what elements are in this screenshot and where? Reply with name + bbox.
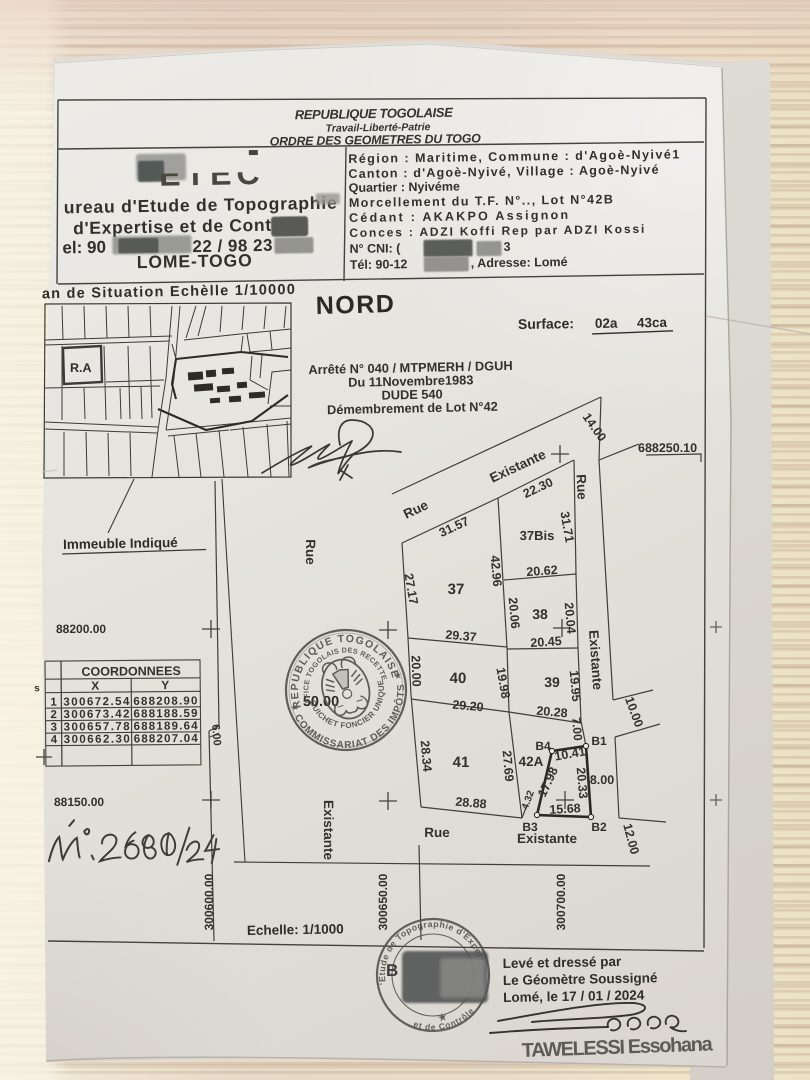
svg-text:300650.00: 300650.00 xyxy=(376,873,390,930)
svg-text:688207.04: 688207.04 xyxy=(134,733,199,746)
svg-text:37: 37 xyxy=(448,581,465,598)
svg-text:300662.30: 300662.30 xyxy=(64,733,130,746)
svg-text:Tél: 90-12: Tél: 90-12 xyxy=(350,257,408,272)
svg-text:300600.00: 300600.00 xyxy=(202,873,216,930)
svg-text:LOME-TOGO: LOME-TOGO xyxy=(137,250,252,272)
svg-text:Morcellement du T.F. N°.., Lot: Morcellement du T.F. N°.., Lot N°42B xyxy=(349,192,613,210)
svg-text:3: 3 xyxy=(503,240,510,254)
svg-text:4.32: 4.32 xyxy=(520,789,537,811)
svg-text:27.69: 27.69 xyxy=(500,750,517,782)
svg-text:Y: Y xyxy=(161,678,169,692)
svg-text:X: X xyxy=(91,679,99,693)
svg-text:TAWELESSI Essohana: TAWELESSI Essohana xyxy=(521,1033,714,1062)
svg-text:688208.90: 688208.90 xyxy=(133,695,197,708)
svg-text:19.98: 19.98 xyxy=(493,666,512,699)
svg-text:300657.78: 300657.78 xyxy=(64,721,131,734)
svg-text:8.00: 8.00 xyxy=(590,773,614,787)
svg-text:88200.00: 88200.00 xyxy=(56,622,106,636)
svg-text:NORD: NORD xyxy=(315,290,395,320)
svg-text:COORDONNEES: COORDONNEES xyxy=(81,664,180,679)
svg-text:Echelle: 1/1000: Echelle: 1/1000 xyxy=(247,921,344,938)
svg-text:300673.42: 300673.42 xyxy=(63,708,129,721)
svg-text:14.00: 14.00 xyxy=(580,410,609,444)
svg-text:7.00: 7.00 xyxy=(569,717,585,742)
svg-text:Démembrement de Lot N°42: Démembrement de Lot N°42 xyxy=(327,399,498,418)
svg-text:688189.64: 688189.64 xyxy=(134,720,199,733)
svg-text:42.96: 42.96 xyxy=(488,555,505,587)
svg-text:37Bis: 37Bis xyxy=(520,528,555,543)
svg-text:688188.59: 688188.59 xyxy=(133,708,197,721)
svg-text:B1: B1 xyxy=(591,734,607,748)
svg-text:88150.00: 88150.00 xyxy=(54,795,104,809)
svg-text:20.28: 20.28 xyxy=(536,704,568,721)
svg-text:B3: B3 xyxy=(522,820,538,834)
svg-text:20.33: 20.33 xyxy=(574,767,591,799)
svg-text:29.20: 29.20 xyxy=(452,698,484,715)
svg-text:40: 40 xyxy=(450,670,467,687)
svg-text:4: 4 xyxy=(51,734,58,746)
svg-text:d'Expertise et de Cont: d'Expertise et de Cont xyxy=(73,215,271,238)
svg-text:17.98: 17.98 xyxy=(535,765,561,799)
svg-text:42A: 42A xyxy=(519,754,544,769)
svg-text:B: B xyxy=(386,961,398,980)
svg-text:12.00: 12.00 xyxy=(620,822,642,856)
svg-text:Rue: Rue xyxy=(573,474,589,501)
svg-text:41: 41 xyxy=(453,754,470,771)
svg-text:300700.00: 300700.00 xyxy=(554,873,568,930)
svg-text:3: 3 xyxy=(51,722,58,734)
svg-text:Le Géomètre Soussigné: Le Géomètre Soussigné xyxy=(503,970,658,988)
svg-text:10.41: 10.41 xyxy=(553,744,586,763)
svg-text:s: s xyxy=(34,683,40,694)
svg-text:Rue: Rue xyxy=(424,825,450,840)
svg-text:2: 2 xyxy=(50,709,57,721)
svg-text:ORDRE DES GEOMETRES DU TOGO: ORDRE DES GEOMETRES DU TOGO xyxy=(270,131,482,148)
svg-text:an de Situation Echèlle 1/1000: an de Situation Echèlle 1/10000 xyxy=(42,282,295,302)
svg-text:el: 90: el: 90 xyxy=(62,238,106,258)
svg-text:22.30: 22.30 xyxy=(521,475,555,501)
svg-text:19.95: 19.95 xyxy=(567,670,584,702)
svg-text:Levé et dressé par: Levé et dressé par xyxy=(502,954,622,971)
svg-text:28.34: 28.34 xyxy=(418,740,435,772)
svg-text:20.04: 20.04 xyxy=(562,602,579,634)
svg-text:39: 39 xyxy=(544,674,560,690)
svg-text:10.00: 10.00 xyxy=(622,695,646,729)
svg-text:Surface:: Surface: xyxy=(518,315,574,332)
svg-text:02a: 02a xyxy=(595,316,618,331)
svg-text:38: 38 xyxy=(532,606,548,622)
svg-text:Conces : ADZI Koffi Rep par AD: Conces : ADZI Koffi Rep par ADZI Kossi xyxy=(349,222,644,240)
svg-text:, Adresse: Lomé: , Adresse: Lomé xyxy=(471,255,568,270)
svg-text:20.62: 20.62 xyxy=(526,563,558,579)
svg-text:Rue: Rue xyxy=(401,497,431,522)
svg-text:Existante: Existante xyxy=(586,629,605,690)
svg-text:ureau d'Etude de Topographie: ureau d'Etude de Topographie xyxy=(64,193,338,218)
svg-text:Canton : d'Agoè-Nyivé, Village: Canton : d'Agoè-Nyivé, Village : Agoè-Ny… xyxy=(348,163,658,181)
svg-text:R.A: R.A xyxy=(70,361,92,375)
svg-text:20.45: 20.45 xyxy=(530,634,562,650)
svg-text:Rue: Rue xyxy=(303,539,318,565)
svg-text:N° CNI: (: N° CNI: ( xyxy=(349,241,401,256)
svg-text:15.68: 15.68 xyxy=(549,801,581,817)
svg-text:31.57: 31.57 xyxy=(437,514,471,540)
svg-text:43ca: 43ca xyxy=(637,315,668,330)
svg-text:20.00: 20.00 xyxy=(408,655,423,687)
svg-text:688250.10: 688250.10 xyxy=(638,441,697,455)
svg-text:20.06: 20.06 xyxy=(506,597,523,629)
svg-text:B4: B4 xyxy=(535,739,551,753)
svg-text:27.17: 27.17 xyxy=(401,572,420,605)
svg-text:31.71: 31.71 xyxy=(557,510,576,543)
svg-text:REPUBLIQUE TOGOLAISE: REPUBLIQUE TOGOLAISE xyxy=(295,105,454,122)
svg-text:6.00: 6.00 xyxy=(209,724,223,746)
svg-text:Existante: Existante xyxy=(321,800,336,861)
svg-text:Immeuble Indiqué: Immeuble Indiqué xyxy=(63,535,178,552)
svg-text:28.88: 28.88 xyxy=(455,795,487,812)
svg-text:B2: B2 xyxy=(591,820,607,834)
svg-text:300672.54: 300672.54 xyxy=(63,696,130,709)
svg-text:Quartier : Nyivéme: Quartier : Nyivéme xyxy=(349,179,460,195)
svg-text:1: 1 xyxy=(50,697,57,709)
svg-text:29.37: 29.37 xyxy=(445,628,477,645)
